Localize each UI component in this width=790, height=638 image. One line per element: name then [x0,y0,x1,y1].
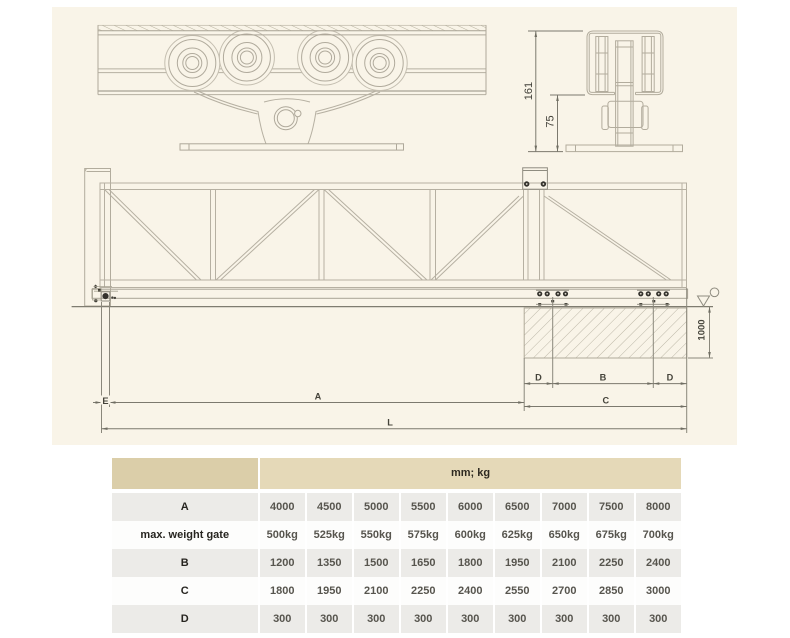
svg-text:E: E [102,396,108,406]
svg-text:B: B [600,373,607,383]
svg-text:1000: 1000 [697,319,708,340]
svg-text:C: C [602,396,609,406]
svg-text:D: D [667,373,674,383]
svg-text:161: 161 [523,82,535,100]
svg-text:D: D [535,373,542,383]
svg-text:A: A [315,392,322,402]
svg-text:75: 75 [545,115,557,127]
svg-text:L: L [387,418,393,428]
